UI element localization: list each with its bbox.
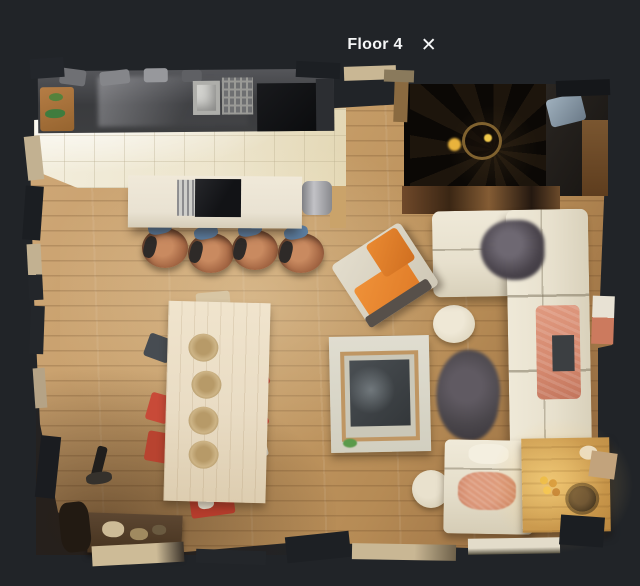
- lamp-glow: [448, 138, 461, 151]
- metal-bin: [302, 181, 332, 215]
- fire-table: [329, 335, 431, 453]
- pendant-lamp: [462, 122, 502, 160]
- cutting-board: [40, 87, 74, 131]
- kitchen-island: [128, 175, 302, 228]
- bar-stool: [232, 230, 278, 270]
- lamp-glow: [484, 134, 492, 142]
- dinner-plate: [188, 406, 219, 435]
- stair-railing-wood: [582, 120, 608, 196]
- chaise-blanket: [458, 471, 517, 510]
- dark-cushion-patch: [552, 335, 575, 371]
- kitchen-sink: [193, 81, 220, 115]
- fire-table-center: [349, 359, 410, 426]
- island-side-cabinet: [330, 186, 346, 228]
- floor-header: Floor 4 ✕: [0, 30, 640, 60]
- bar-stool: [278, 233, 324, 273]
- floor-statue: [84, 446, 116, 492]
- counter-end: [316, 79, 334, 131]
- scan-fragment: [29, 306, 45, 354]
- scan-fragment: [285, 531, 351, 564]
- scan-fragment: [393, 78, 409, 122]
- scan-fragment: [196, 549, 266, 565]
- dinner-plate: [191, 370, 222, 399]
- island-grate: [177, 180, 195, 216]
- chaise-pillow: [468, 444, 508, 465]
- scan-fragment: [27, 244, 44, 301]
- dinner-plate: [188, 333, 219, 362]
- bar-stool: [142, 228, 188, 268]
- floor-title: Floor 4: [347, 36, 402, 54]
- dark-object: [57, 501, 92, 554]
- stairwell-side: [546, 84, 608, 196]
- sectional-sofa: [432, 205, 596, 464]
- dish-rack: [222, 77, 253, 114]
- scan-fragment: [559, 515, 605, 548]
- scan-fragment: [29, 57, 64, 79]
- scan-fragment: [384, 69, 414, 82]
- staircase: [404, 84, 548, 190]
- scan-fragment: [92, 542, 185, 567]
- scan-fragment: [296, 61, 341, 79]
- floorplan-top-view[interactable]: [0, 0, 640, 586]
- flower-decor: [540, 476, 564, 498]
- scan-fragment: [588, 450, 617, 479]
- plant-decor: [343, 438, 357, 447]
- kitchen-counter: [38, 69, 335, 134]
- scan-fragment: [22, 185, 44, 240]
- dinner-plate: [188, 440, 219, 469]
- scan-fragment: [468, 537, 560, 555]
- scan-fragment: [352, 543, 456, 561]
- scan-fragment: [591, 296, 615, 345]
- scan-fragment: [556, 79, 611, 97]
- dark-bowl: [568, 485, 596, 511]
- close-icon[interactable]: ✕: [421, 36, 437, 55]
- blue-pillow: [545, 92, 587, 128]
- counter-item: [144, 68, 168, 82]
- dark-cabinets: [257, 83, 317, 132]
- bar-stool: [188, 233, 234, 273]
- dining-table: [163, 301, 270, 504]
- cooktop: [195, 179, 241, 217]
